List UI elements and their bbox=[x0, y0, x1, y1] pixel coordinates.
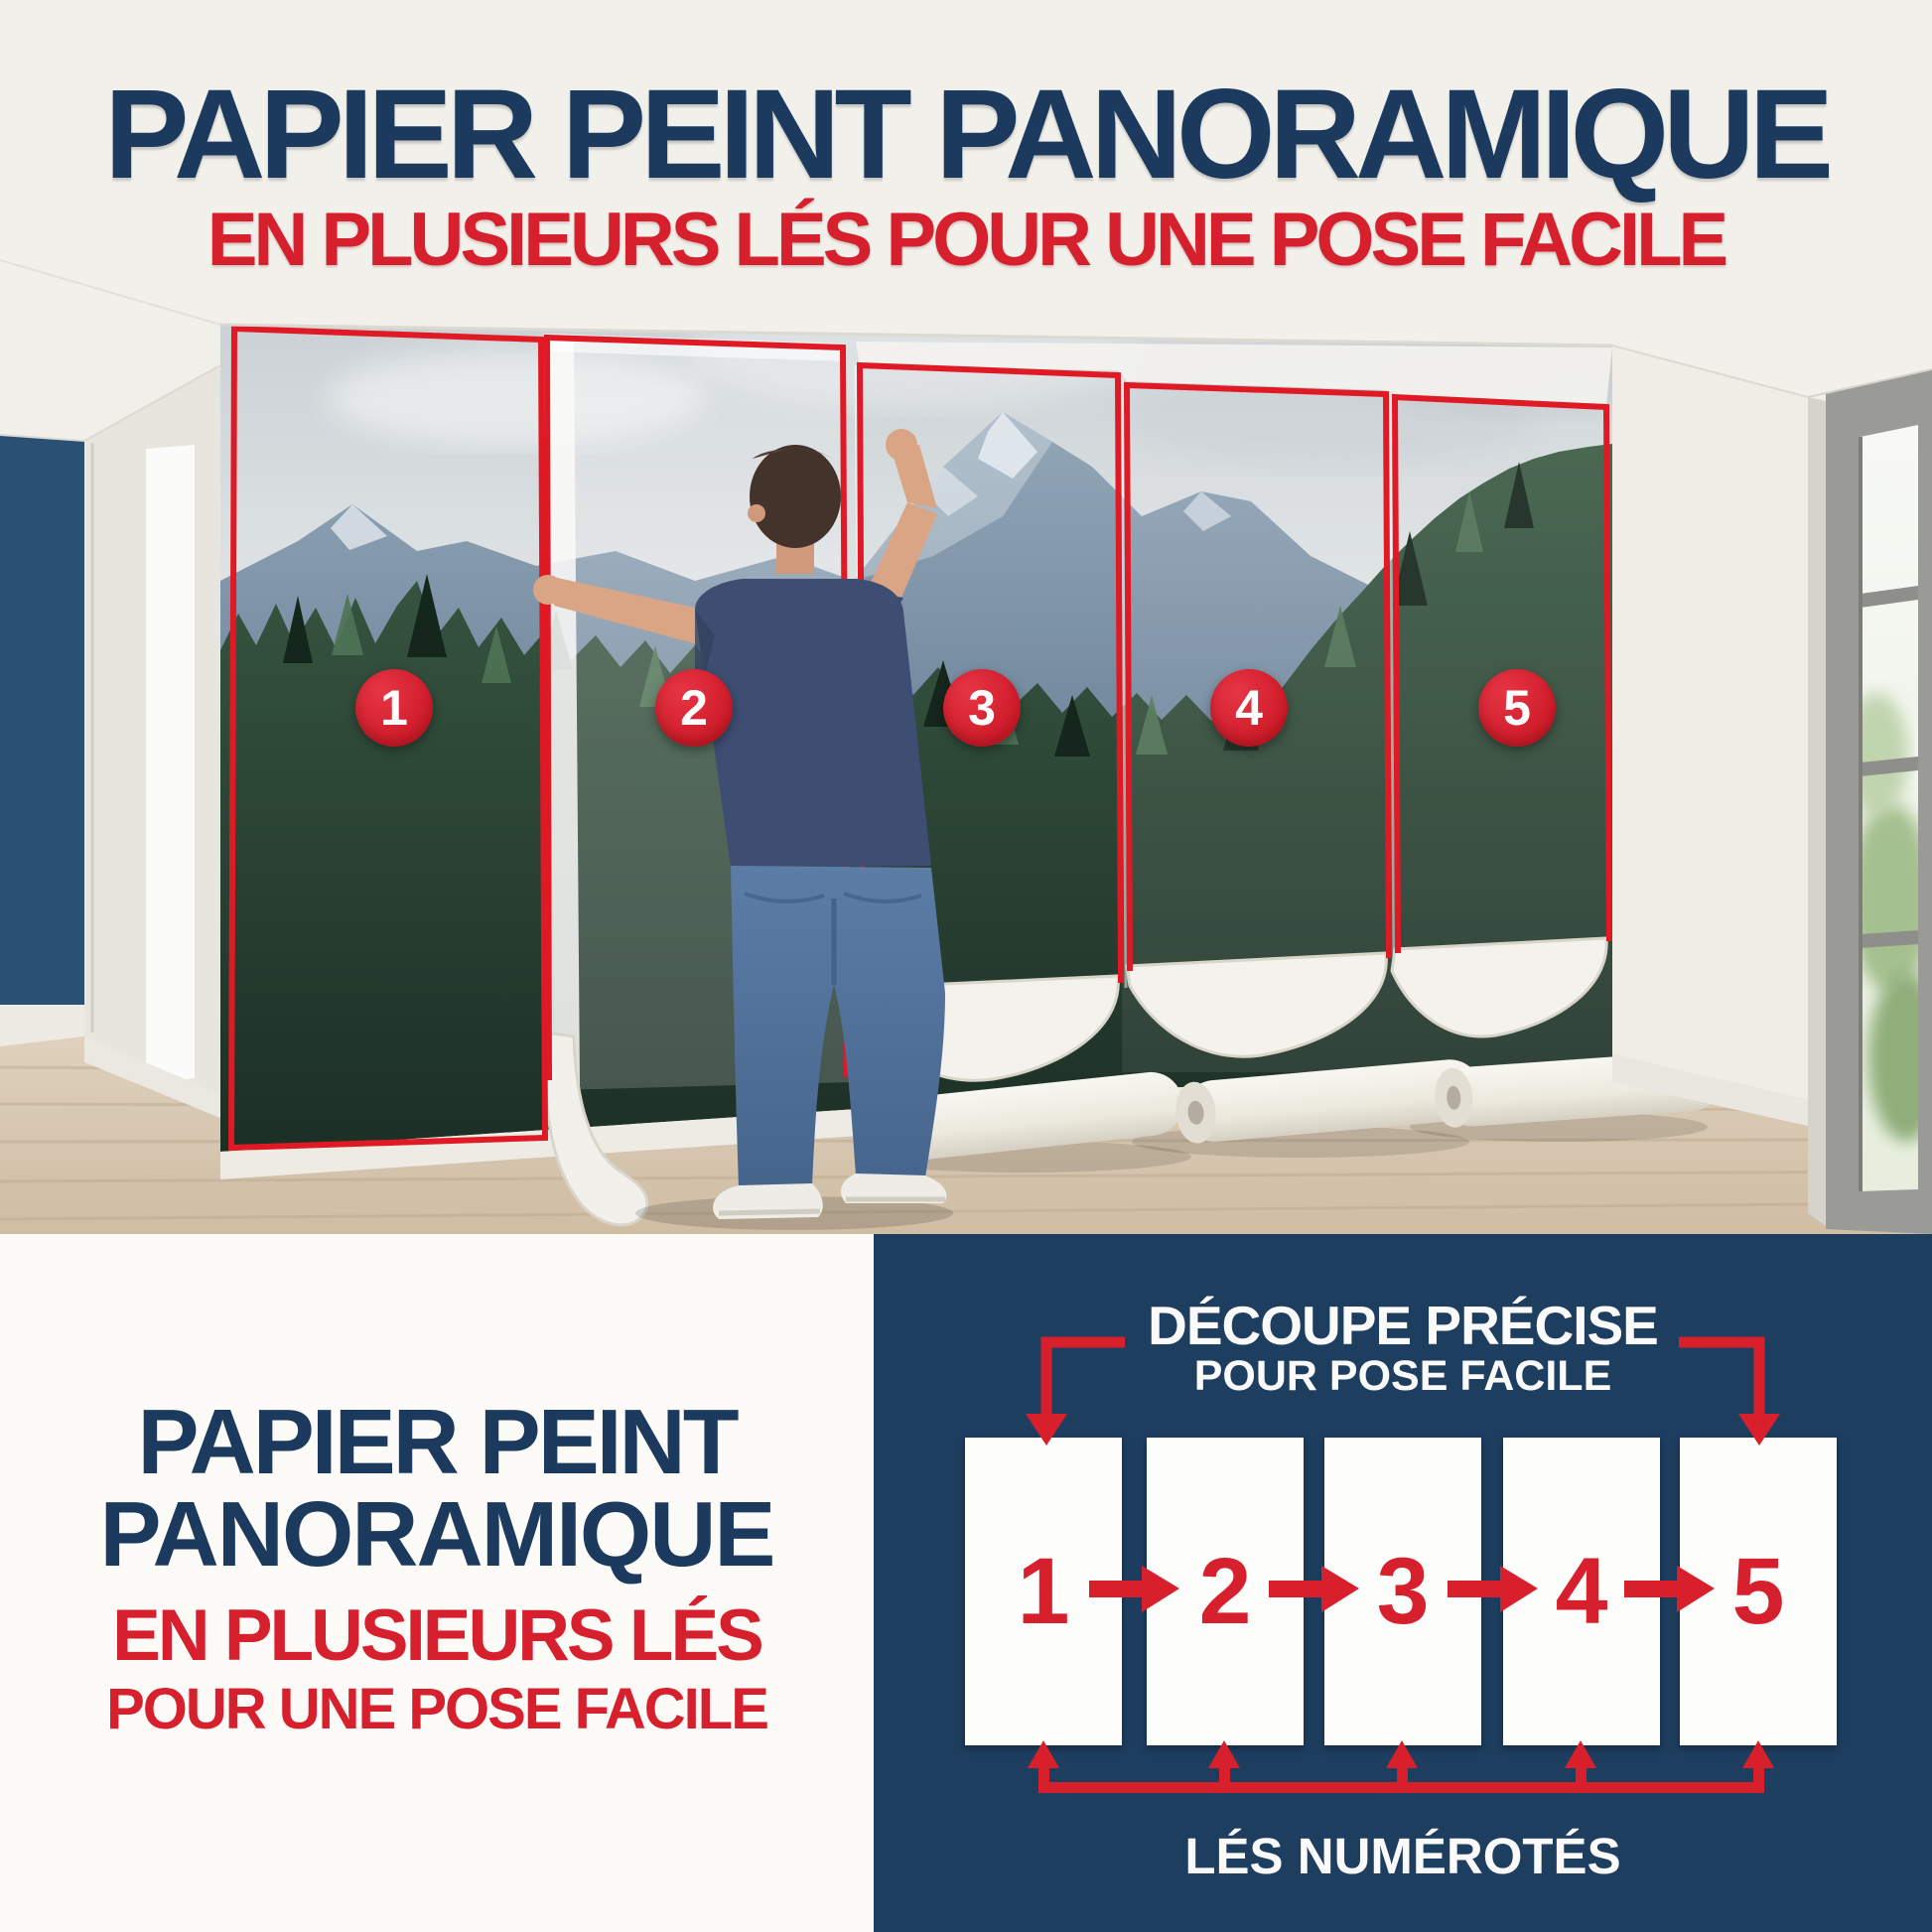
badge-label: 3 bbox=[968, 680, 996, 736]
poster-subtitle: EN PLUSIEURS LÉS POUR UNE POSE FACILE bbox=[0, 197, 1932, 283]
sequence-arrows bbox=[1089, 1566, 1715, 1612]
badge-label: 4 bbox=[1235, 680, 1263, 736]
diagram-caption: LÉS NUMÉROTÉS bbox=[874, 1827, 1932, 1885]
badge-label: 2 bbox=[680, 680, 708, 736]
badge-label: 1 bbox=[380, 680, 408, 736]
poster-title: PAPIER PEINT PANORAMIQUE bbox=[0, 62, 1932, 207]
man-ear bbox=[748, 504, 765, 522]
man-torso-shirt bbox=[695, 579, 931, 868]
strip-number-badge-4: 4 bbox=[1210, 669, 1288, 747]
door-opening bbox=[146, 445, 195, 1086]
badge-label: 5 bbox=[1503, 680, 1531, 736]
strip-number-badge-1: 1 bbox=[355, 669, 433, 747]
man-head-hair bbox=[750, 445, 841, 548]
card-title-line1: PAPIER PEINT bbox=[0, 1389, 874, 1495]
cut-arrowhead-left bbox=[1026, 1414, 1067, 1446]
cut-arrow-right bbox=[1679, 1342, 1759, 1416]
cut-arrowhead-right bbox=[1738, 1414, 1780, 1446]
card-title-line2: PANORAMIQUE bbox=[0, 1481, 874, 1587]
numbered-comb bbox=[1028, 1740, 1774, 1793]
window-recess bbox=[1808, 397, 1826, 1226]
navy-accent-wall bbox=[0, 435, 84, 1015]
cut-arrow-left bbox=[1046, 1342, 1125, 1416]
left-walls bbox=[0, 365, 220, 1118]
strip-number-badge-2: 2 bbox=[655, 669, 733, 747]
card-subtitle-line1: EN PLUSIEURS LÉS bbox=[0, 1594, 874, 1677]
strip-number-badge-3: 3 bbox=[943, 669, 1021, 747]
card-subtitle-line2: POUR UNE POSE FACILE bbox=[0, 1676, 874, 1742]
man-right-hand bbox=[886, 429, 917, 461]
wallpaper-infographic-poster: 1 2 3 4 5 PAPIER PEINT PANORAMIQUE EN PL… bbox=[0, 0, 1932, 1932]
man-left-hand bbox=[533, 575, 563, 605]
strip-number-badge-5: 5 bbox=[1478, 669, 1556, 747]
